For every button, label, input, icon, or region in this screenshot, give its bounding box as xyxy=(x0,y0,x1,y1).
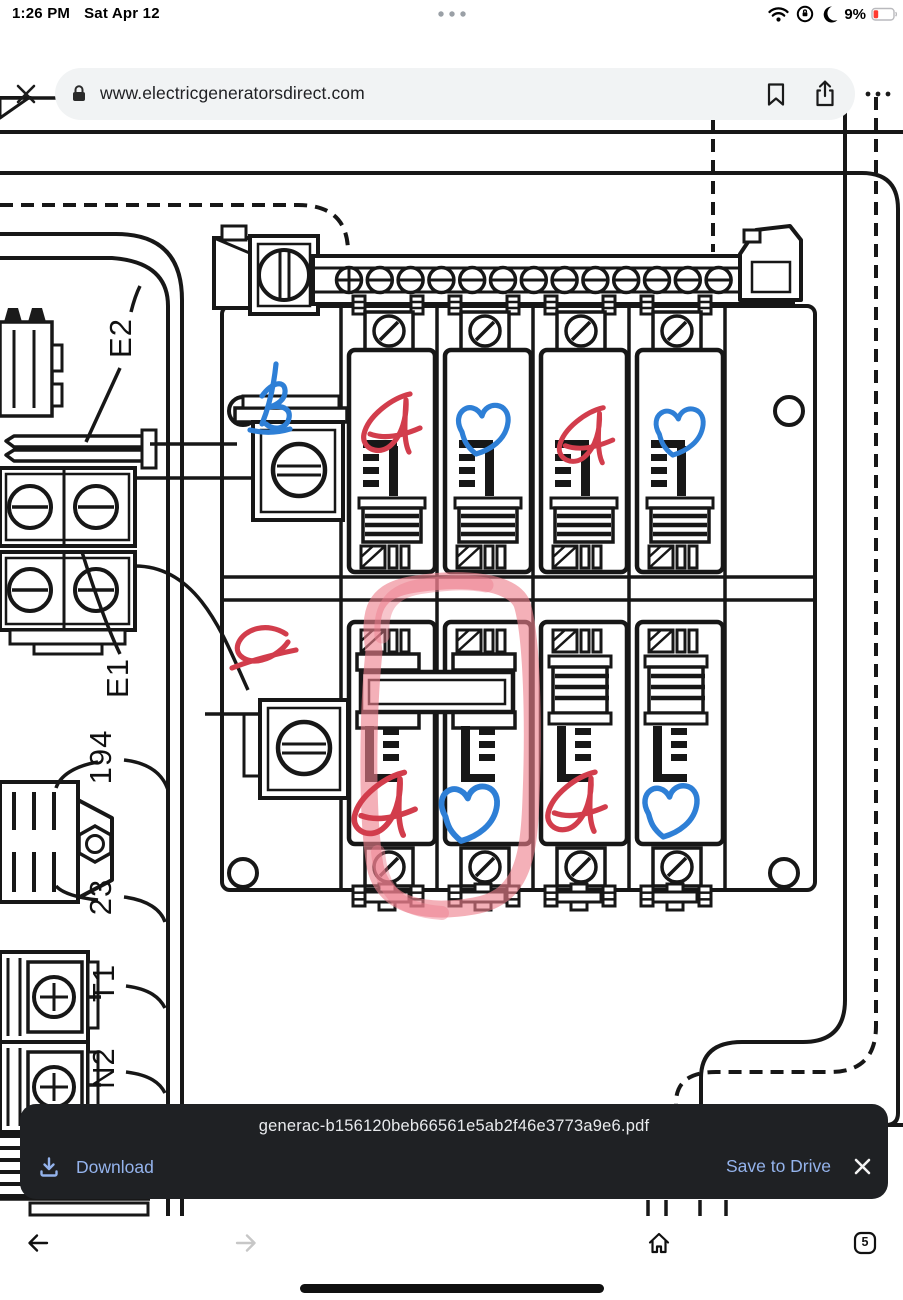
download-filename: generac-b156120beb66561e5ab2f46e3773a9e6… xyxy=(20,1117,888,1136)
ipad-safari-screen: 1:26 PMSat Apr 12 9% xyxy=(0,0,903,1300)
wifi-icon xyxy=(767,4,790,24)
handwritten-A-annotation xyxy=(232,628,296,668)
secure-lock-icon xyxy=(70,84,88,103)
diagram-label-194: 194 xyxy=(83,730,118,785)
back-button[interactable] xyxy=(25,1230,51,1256)
status-time-date: 1:26 PMSat Apr 12 xyxy=(12,5,160,22)
diagram-label-T1: T1 xyxy=(86,964,121,1002)
download-bar: generac-b156120beb66561e5ab2f46e3773a9e6… xyxy=(20,1104,888,1199)
date-text: Sat Apr 12 xyxy=(84,5,160,22)
battery-percent: 9% xyxy=(844,6,866,23)
forward-button-disabled[interactable] xyxy=(233,1230,259,1256)
download-icon xyxy=(38,1156,60,1178)
diagram-label-23: 23 xyxy=(83,879,118,915)
diagram-label-E1: E1 xyxy=(100,658,135,698)
multitask-dots-icon xyxy=(436,8,470,20)
more-menu-icon[interactable] xyxy=(863,89,893,99)
clock-text: 1:26 PM xyxy=(12,5,70,22)
download-label[interactable]: Download xyxy=(76,1157,154,1178)
bookmark-icon[interactable] xyxy=(764,81,788,107)
browser-toolbar: www.electricgeneratorsdirect.com xyxy=(0,30,903,96)
diagram-label-N2: N2 xyxy=(86,1047,121,1089)
status-bar: 1:26 PMSat Apr 12 9% xyxy=(0,0,903,30)
rotation-lock-icon xyxy=(795,4,815,24)
share-icon[interactable] xyxy=(812,79,838,108)
battery-icon xyxy=(871,4,899,24)
download-button[interactable]: Download xyxy=(38,1156,154,1178)
dismiss-download-icon[interactable] xyxy=(853,1157,872,1176)
diagram-label-E2: E2 xyxy=(103,318,138,358)
save-to-drive-button[interactable]: Save to Drive xyxy=(726,1156,831,1177)
home-indicator[interactable] xyxy=(300,1284,604,1293)
url-text[interactable]: www.electricgeneratorsdirect.com xyxy=(100,83,365,104)
home-button[interactable] xyxy=(646,1230,672,1256)
close-page-button[interactable] xyxy=(14,82,38,106)
tab-count: 5 xyxy=(852,1235,878,1249)
moon-icon xyxy=(820,4,839,24)
